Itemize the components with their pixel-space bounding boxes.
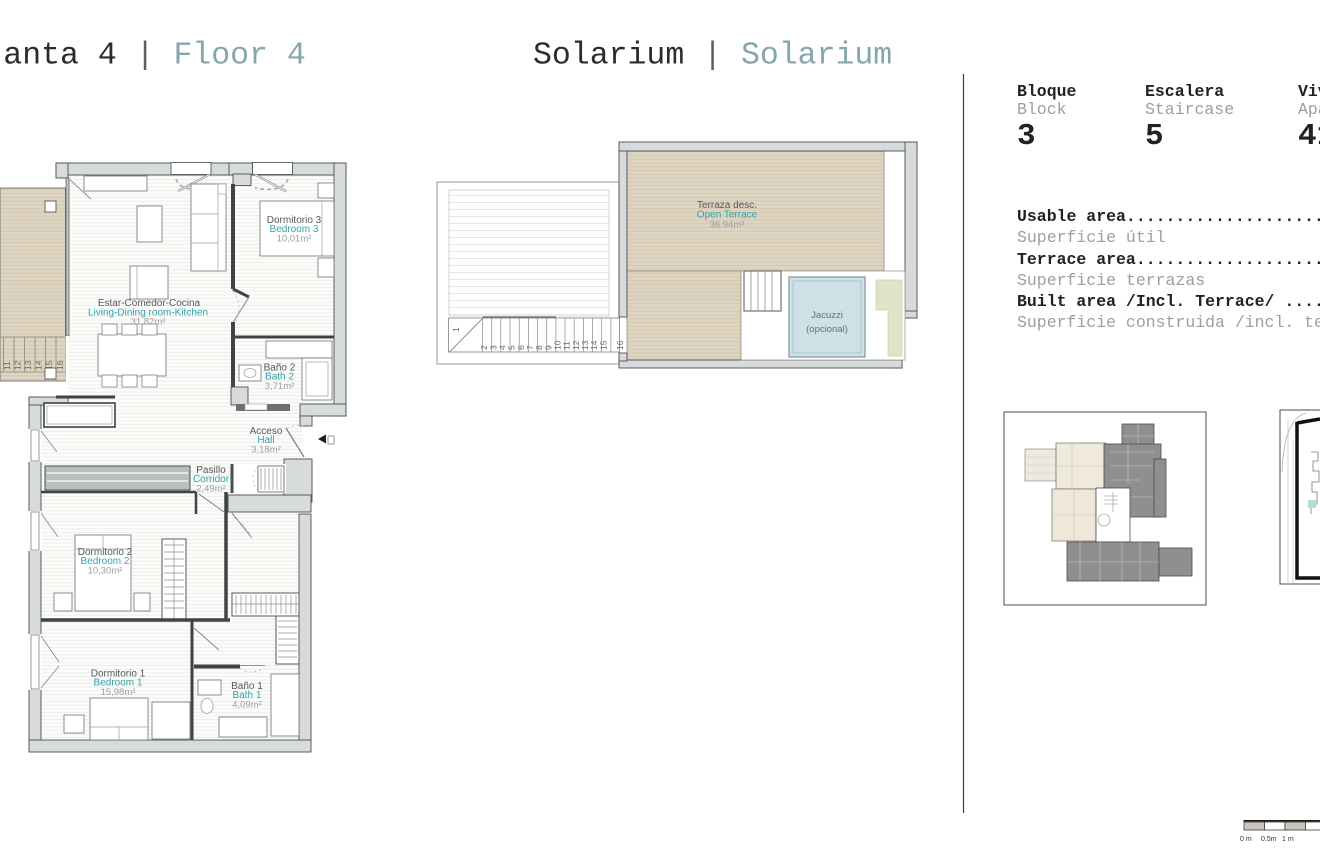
svg-text:2,49m²: 2,49m² bbox=[196, 483, 226, 494]
svg-text:Superficie construida /incl. t: Superficie construida /incl. terr bbox=[1017, 313, 1320, 332]
svg-text:(opcional): (opcional) bbox=[806, 324, 848, 335]
svg-text:15: 15 bbox=[598, 340, 608, 350]
svg-text:Bloque: Bloque bbox=[1017, 82, 1077, 101]
svg-text:5: 5 bbox=[1145, 119, 1164, 154]
svg-text:11: 11 bbox=[2, 361, 12, 370]
svg-text:4,09m²: 4,09m² bbox=[232, 699, 262, 710]
svg-text:Superficie terrazas: Superficie terrazas bbox=[1017, 271, 1205, 290]
svg-text:Built area /Incl. Terrace/ ...: Built area /Incl. Terrace/ ........ bbox=[1017, 292, 1320, 311]
svg-text:41: 41 bbox=[1298, 119, 1320, 154]
svg-text:1: 1 bbox=[451, 327, 461, 332]
svg-text:10,01m²: 10,01m² bbox=[277, 233, 312, 244]
svg-text:13: 13 bbox=[23, 360, 33, 370]
svg-text:Terrace area..................: Terrace area....................... bbox=[1017, 250, 1320, 269]
svg-text:16: 16 bbox=[615, 340, 625, 350]
svg-text:12: 12 bbox=[13, 360, 23, 370]
svg-text:Solarium | Solarium: Solarium | Solarium bbox=[533, 39, 892, 74]
svg-text:Superficie útil: Superficie útil bbox=[1017, 228, 1166, 247]
svg-text:15,98m²: 15,98m² bbox=[101, 687, 136, 698]
svg-text:0 m: 0 m bbox=[1240, 836, 1252, 843]
svg-text:Jacuzzi: Jacuzzi bbox=[811, 310, 843, 321]
svg-text:3,71m²: 3,71m² bbox=[265, 381, 295, 392]
svg-text:Escalera: Escalera bbox=[1145, 82, 1224, 101]
svg-text:14: 14 bbox=[34, 360, 44, 370]
svg-text:31,82m²: 31,82m² bbox=[131, 317, 166, 328]
svg-text:Planta 4 | Floor 4: Planta 4 | Floor 4 bbox=[0, 39, 306, 74]
svg-text:Vivienda: Vivienda bbox=[1298, 82, 1320, 101]
svg-text:Block: Block bbox=[1017, 100, 1067, 119]
svg-text:10,30m²: 10,30m² bbox=[88, 565, 123, 576]
svg-text:3: 3 bbox=[1017, 119, 1036, 154]
svg-text:0.5m: 0.5m bbox=[1261, 836, 1277, 843]
svg-text:3,18m²: 3,18m² bbox=[251, 444, 281, 455]
svg-text:Staircase: Staircase bbox=[1145, 100, 1234, 119]
svg-text:Apartment: Apartment bbox=[1298, 100, 1320, 119]
svg-text:Usable area...................: Usable area........................ bbox=[1017, 207, 1320, 226]
svg-text:36.94m²: 36.94m² bbox=[710, 219, 745, 230]
svg-text:1 m: 1 m bbox=[1282, 836, 1294, 843]
svg-text:16: 16 bbox=[55, 360, 65, 370]
svg-text:10: 10 bbox=[0, 360, 1, 370]
